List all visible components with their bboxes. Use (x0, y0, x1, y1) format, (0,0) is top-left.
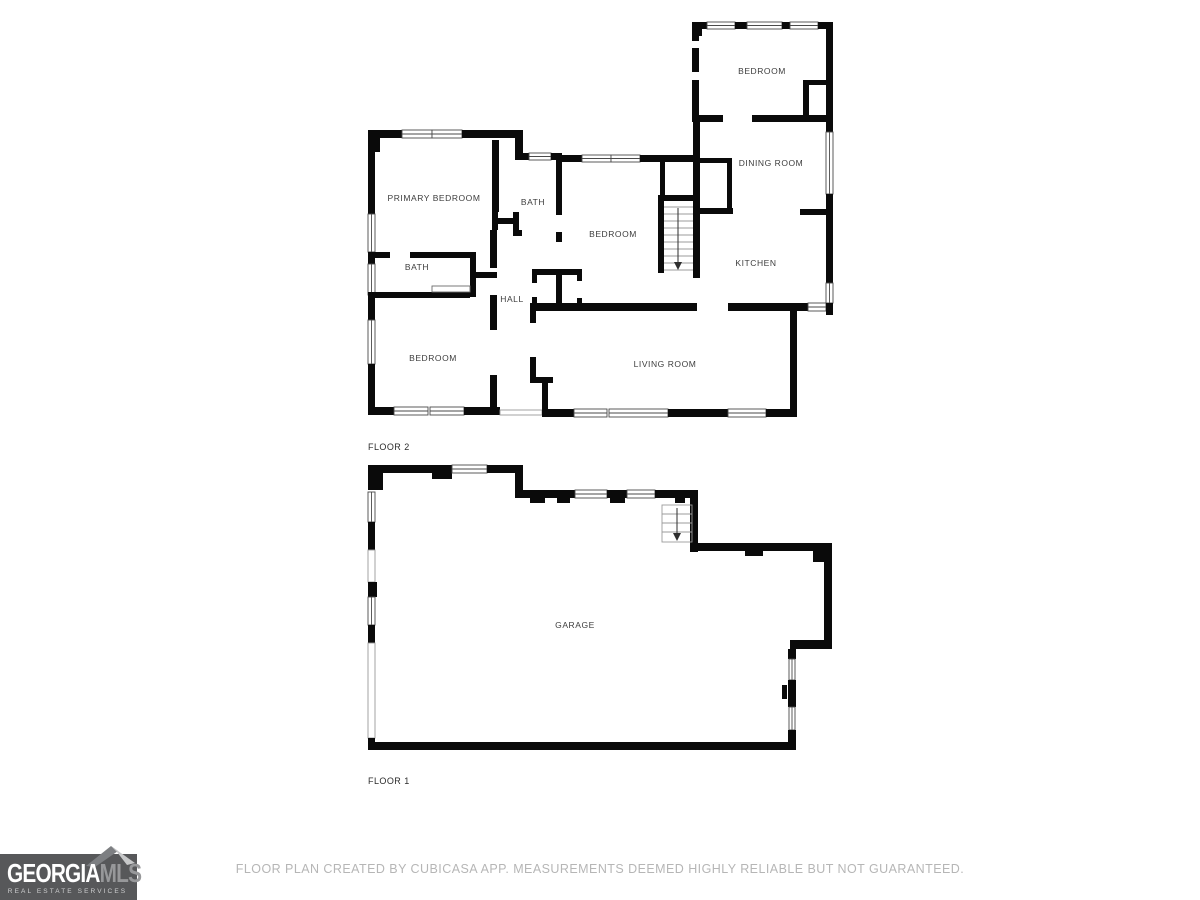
disclaimer-text: FLOOR PLAN CREATED BY CUBICASA APP. MEAS… (0, 862, 1200, 876)
room-label-primary-bedroom: PRIMARY BEDROOM (388, 193, 481, 203)
room-label-dining-room: DINING ROOM (739, 158, 804, 168)
room-label-bath-upper: BATH (521, 197, 545, 207)
floor2-center-walls (530, 155, 833, 417)
room-label-kitchen: KITCHEN (735, 258, 776, 268)
room-label-bedroom-lower: BEDROOM (409, 353, 457, 363)
logo-tagline: REAL ESTATE SERVICES (2, 888, 133, 895)
room-label-bedroom-top: BEDROOM (738, 66, 786, 76)
room-label-living-room: LIVING ROOM (634, 359, 697, 369)
floor-plan-page: { "colors": { "wall": "#0a0a0a", "label"… (0, 0, 1200, 900)
room-label-bath-lower: BATH (405, 262, 429, 272)
floor1-stairs (662, 505, 692, 542)
room-label-garage: GARAGE (555, 620, 595, 630)
georgia-mls-logo: GEORGIAMLS REAL ESTATE SERVICES (0, 854, 137, 900)
logo-brand-primary: GEORGIA (7, 858, 100, 888)
floor1-label: FLOOR 1 (368, 776, 410, 786)
room-label-bedroom-center: BEDROOM (589, 229, 637, 239)
garage-door-opening (368, 550, 375, 582)
bath-vanity (432, 286, 470, 292)
logo-wordmark: GEORGIAMLS (7, 858, 141, 889)
floor1-garage-walls (368, 465, 832, 750)
floor-plan-canvas (0, 0, 1200, 900)
room-label-hall: HALL (500, 294, 523, 304)
stairs-down-arrow-icon (674, 208, 682, 270)
garage-door-opening (368, 643, 375, 738)
stairs-down-arrow-icon (673, 508, 681, 541)
floor2-stairs (664, 207, 693, 270)
logo-brand-secondary: MLS (100, 858, 142, 888)
floor2-label: FLOOR 2 (368, 442, 410, 452)
entry-opening (500, 410, 542, 415)
floor1-plan (368, 465, 832, 750)
